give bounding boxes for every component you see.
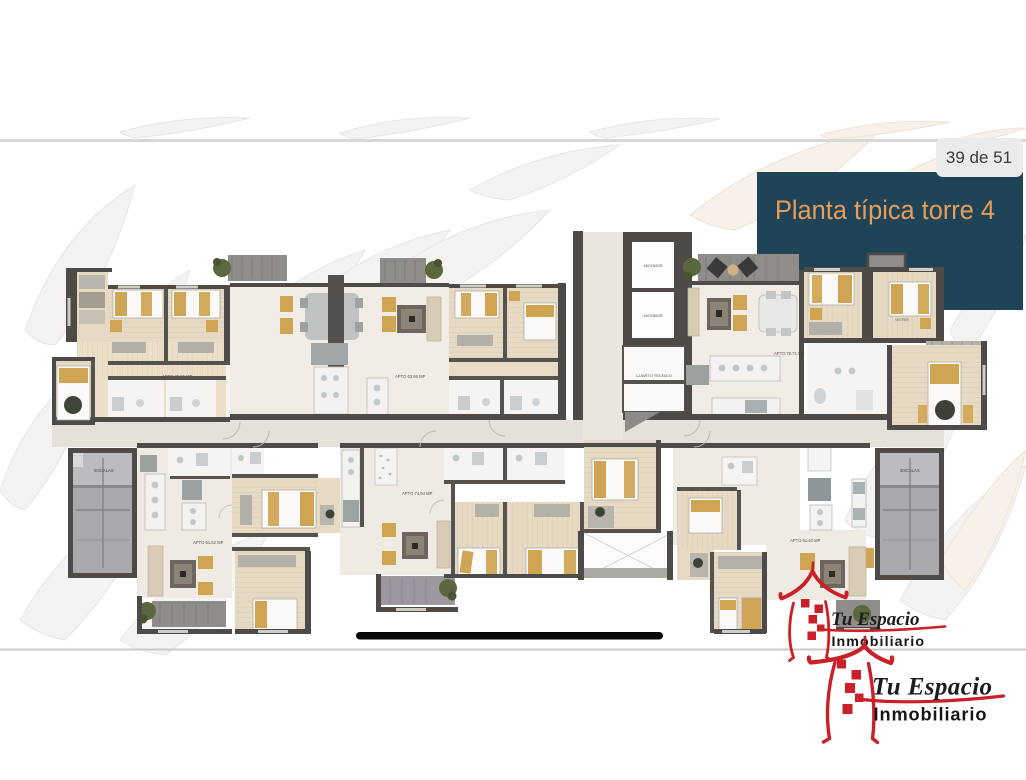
svg-text:ESCALAS: ESCALAS bbox=[94, 468, 114, 473]
svg-text:ASCENSOR: ASCENSOR bbox=[643, 314, 663, 318]
svg-text:APTO 70.95 MP: APTO 70.95 MP bbox=[162, 374, 193, 379]
svg-text:39 de 51: 39 de 51 bbox=[946, 148, 1012, 167]
svg-text:Inmobiliario: Inmobiliario bbox=[832, 634, 926, 650]
svg-text:CUARTO TECNICO: CUARTO TECNICO bbox=[636, 373, 672, 378]
svg-text:Tu Espacio: Tu Espacio bbox=[872, 674, 992, 701]
svg-text:VESTIER: VESTIER bbox=[895, 318, 909, 322]
svg-text:APTO 61.62 MP: APTO 61.62 MP bbox=[193, 540, 224, 545]
svg-text:APTO 61.40 MP: APTO 61.40 MP bbox=[790, 538, 821, 543]
svg-text:ASCENSOR: ASCENSOR bbox=[643, 264, 663, 268]
svg-text:Tu Espacio: Tu Espacio bbox=[831, 609, 920, 630]
svg-text:Inmobiliario: Inmobiliario bbox=[874, 705, 988, 725]
svg-text:APTO 63.86 MP: APTO 63.86 MP bbox=[395, 374, 426, 379]
svg-text:Planta típica torre 4: Planta típica torre 4 bbox=[775, 195, 995, 225]
svg-text:APTO 74.94 MP: APTO 74.94 MP bbox=[402, 491, 433, 496]
svg-text:ESCALAS: ESCALAS bbox=[900, 468, 920, 473]
